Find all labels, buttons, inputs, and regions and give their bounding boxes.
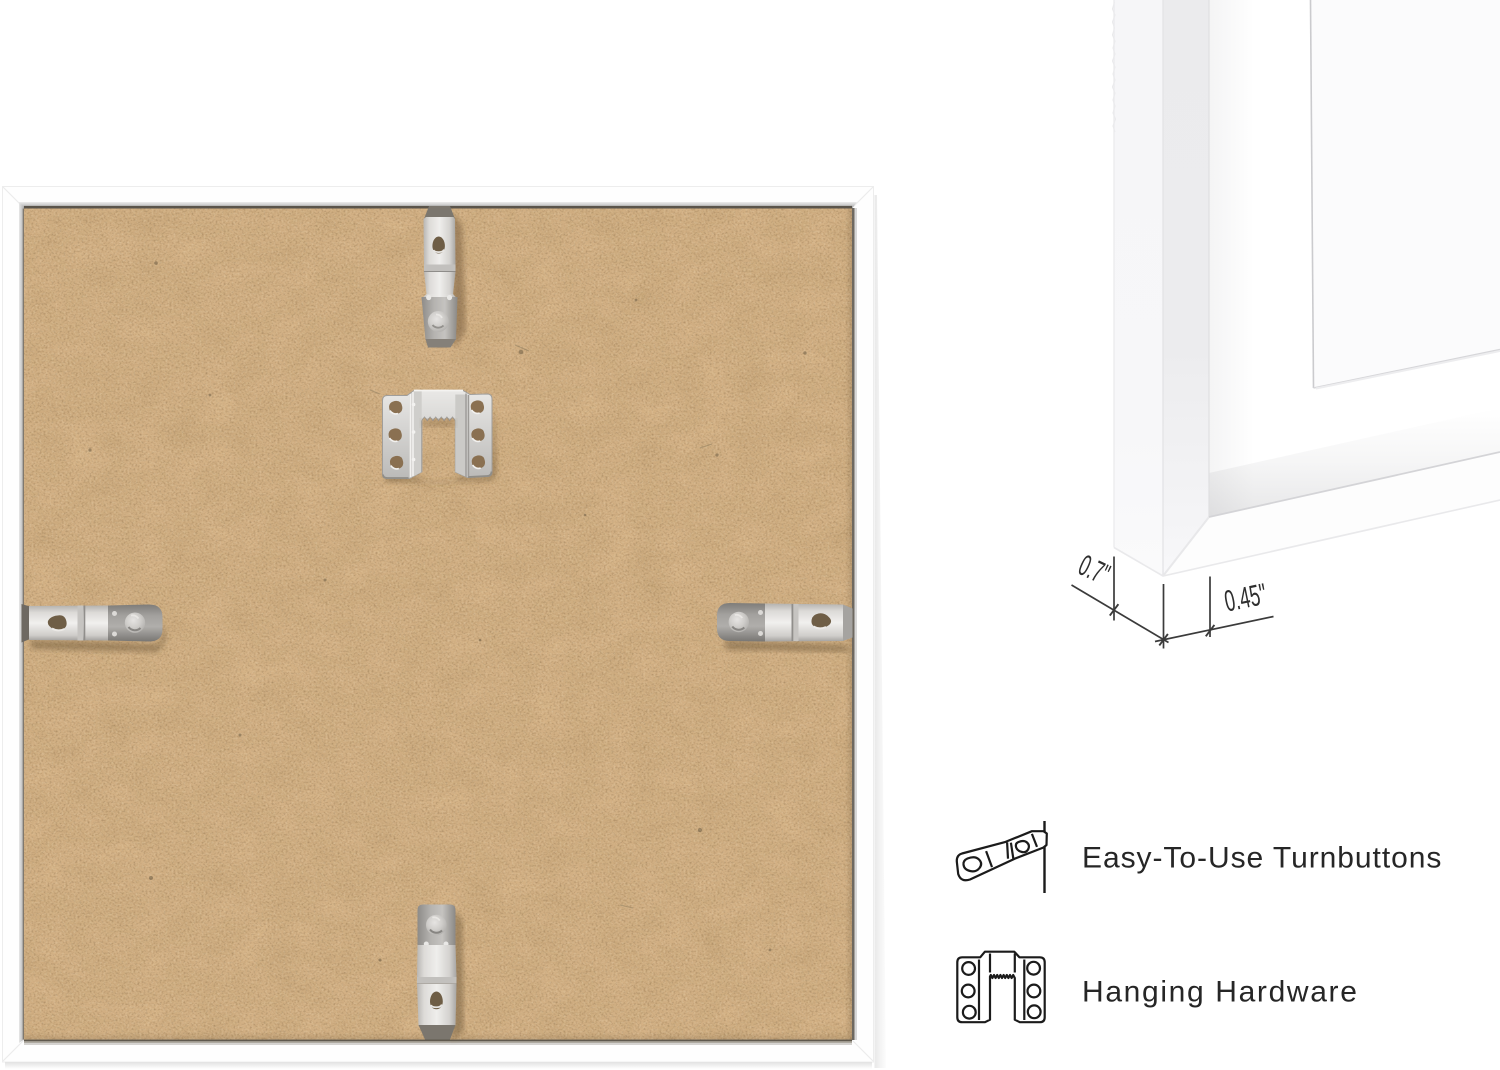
svg-text:Hanging Hardware: Hanging Hardware: [1082, 976, 1359, 1009]
svg-text:Easy-To-Use Turnbuttons: Easy-To-Use Turnbuttons: [1082, 842, 1442, 875]
